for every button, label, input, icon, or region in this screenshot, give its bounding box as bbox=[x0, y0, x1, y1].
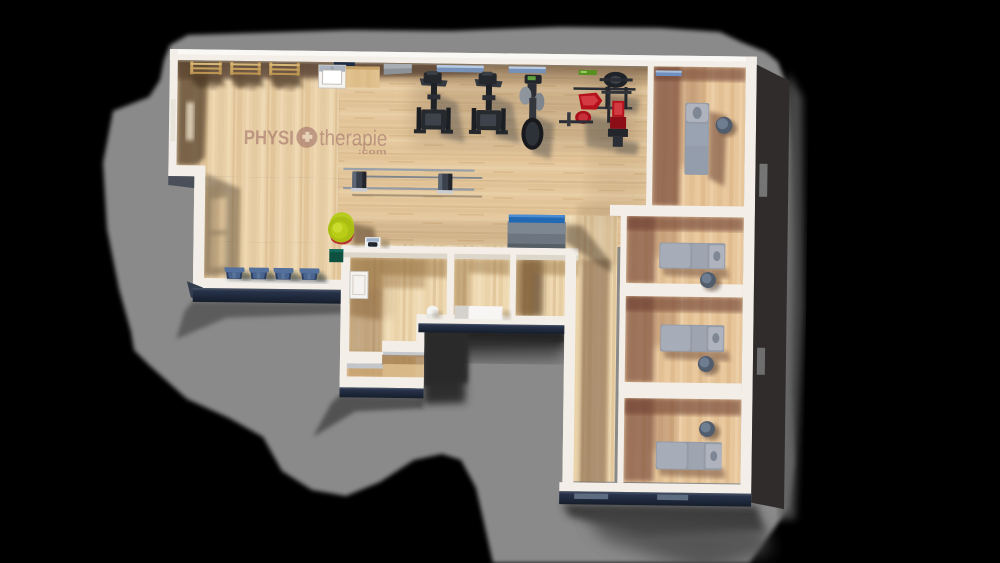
svg-text:PHYSI: PHYSI bbox=[244, 127, 294, 150]
svg-text::com: :com bbox=[358, 147, 387, 156]
